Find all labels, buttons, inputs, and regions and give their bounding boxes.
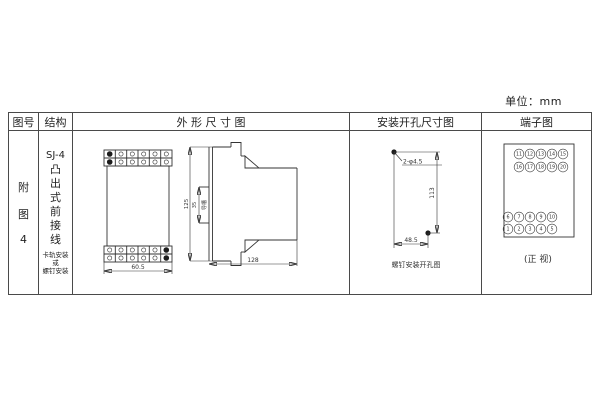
header-terminal: 端子图 [482, 113, 591, 130]
terminal-number: 8 [528, 215, 531, 221]
note-line: 或 [43, 259, 69, 267]
type-char: 出 [50, 177, 61, 191]
note-line: 螺钉安装 [43, 267, 69, 275]
terminal-number: 15 [560, 152, 566, 158]
side-view-drawing: 125 [183, 135, 305, 280]
terminal-number: 4 [539, 227, 542, 233]
terminal-number: 3 [528, 227, 531, 233]
type-char: 接 [50, 219, 61, 233]
figure-char: 图 [18, 206, 29, 222]
header-mounting: 安装开孔尺寸图 [350, 113, 482, 130]
header-structure: 结构 [39, 113, 73, 130]
structure-label: SJ-4 凸 出 式 前 接 线 卡轨安装 或 螺钉安装 [39, 131, 72, 294]
structure-type: 凸 出 式 前 接 线 [50, 163, 61, 247]
header-outline: 外 形 尺 寸 图 [73, 113, 350, 130]
terminal-number: 1 [506, 227, 509, 233]
type-char: 线 [50, 233, 61, 247]
model-name: SJ-4 [46, 150, 65, 161]
table-body-row: 附 图 4 SJ-4 凸 出 式 前 接 线 [9, 131, 591, 294]
front-view-drawing: 60.5 [94, 142, 189, 282]
holes-label: 2-φ4.5 [403, 159, 423, 166]
cell-outline-drawing: 60.5 125 [73, 131, 350, 294]
groove-dim: 35 [192, 202, 198, 208]
vertical-spacing-dim: 113 [429, 187, 436, 199]
mounting-hole-drawing: 113 48.5 2-φ4.5 螺钉安装开孔图 [350, 131, 482, 295]
terminal-number: 5 [550, 227, 553, 233]
terminal-number: 6 [506, 215, 509, 221]
terminal-grid: 11 12 13 14 15 16 17 18 19 20 6 7 [503, 149, 568, 234]
type-char: 前 [50, 205, 61, 219]
front-width-dim: 60.5 [131, 264, 145, 271]
header-figure-no: 图号 [9, 113, 39, 130]
dimension-table: 图号 结构 外 形 尺 寸 图 安装开孔尺寸图 端子图 附 图 4 SJ-4 [8, 112, 592, 295]
type-char: 凸 [50, 163, 61, 177]
terminal-number: 17 [527, 165, 533, 171]
terminal-number: 2 [517, 227, 520, 233]
terminal-outline [504, 144, 574, 237]
mounting-note: 卡轨安装 或 螺钉安装 [43, 251, 69, 275]
groove-label: 导槽 [201, 200, 208, 210]
horizontal-spacing-dim: 48.5 [404, 237, 418, 244]
terminal-caption: (正 视) [524, 253, 552, 265]
figure-label: 附 图 4 [9, 131, 38, 294]
side-depth-dim: 128 [247, 257, 259, 264]
terminal-number: 18 [538, 165, 544, 171]
side-height-dim: 125 [184, 198, 190, 209]
terminal-number: 13 [538, 152, 544, 158]
cell-structure: SJ-4 凸 出 式 前 接 线 卡轨安装 或 螺钉安装 [39, 131, 73, 294]
figure-char: 附 [18, 179, 29, 195]
terminal-diagram: 11 12 13 14 15 16 17 18 19 20 6 7 [482, 131, 590, 295]
type-char: 式 [50, 191, 61, 205]
table-header-row: 图号 结构 外 形 尺 寸 图 安装开孔尺寸图 端子图 [9, 113, 591, 131]
terminal-number: 10 [549, 215, 555, 221]
mounting-caption: 螺钉安装开孔图 [392, 260, 441, 269]
terminal-number: 7 [517, 215, 520, 221]
cell-terminal-drawing: 11 12 13 14 15 16 17 18 19 20 6 7 [482, 131, 591, 294]
terminal-number: 9 [539, 215, 542, 221]
terminal-number: 16 [516, 165, 522, 171]
terminal-number: 14 [549, 152, 555, 158]
unit-label: 单位：mm [505, 93, 562, 109]
cell-mounting-drawing: 113 48.5 2-φ4.5 螺钉安装开孔图 [350, 131, 482, 294]
cell-figure-no: 附 图 4 [9, 131, 39, 294]
note-line: 卡轨安装 [43, 251, 69, 259]
figure-char: 4 [20, 233, 27, 246]
drawing-sheet: 单位：mm 图号 结构 外 形 尺 寸 图 安装开孔尺寸图 端子图 附 图 4 … [0, 0, 600, 400]
terminal-number: 11 [516, 152, 522, 158]
terminal-number: 19 [549, 165, 555, 171]
terminal-number: 12 [527, 152, 533, 158]
terminal-number: 20 [560, 165, 566, 171]
